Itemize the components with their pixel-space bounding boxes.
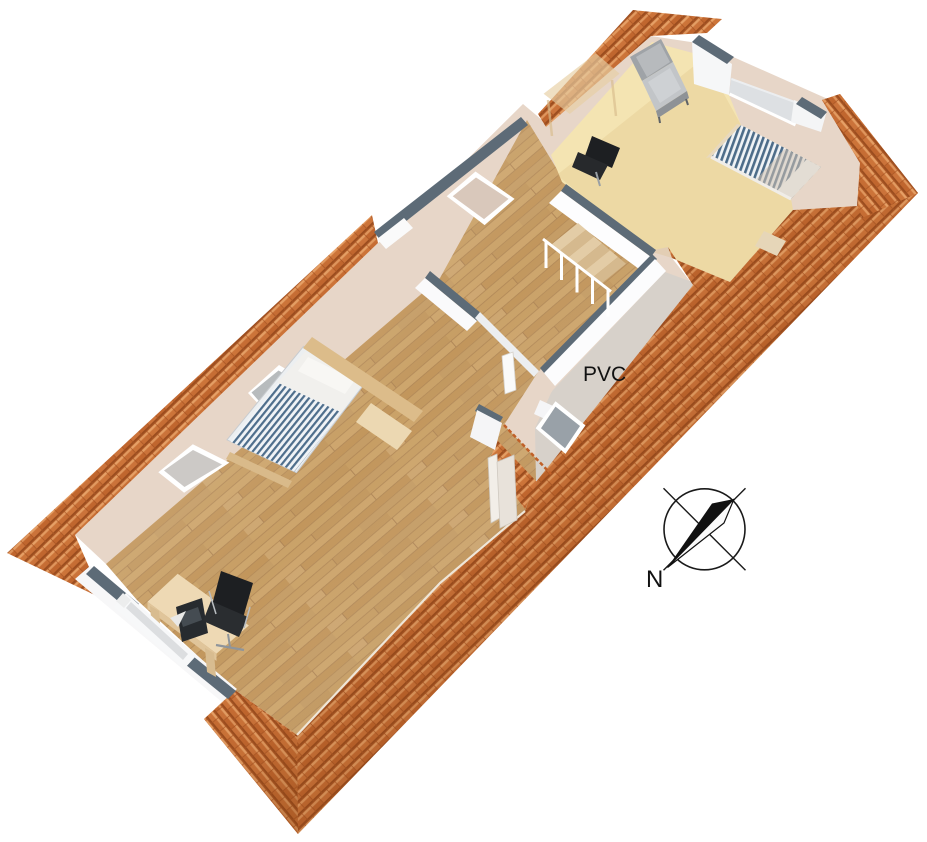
svg-text:N: N — [646, 566, 663, 593]
svg-text:PVC: PVC — [583, 363, 626, 386]
